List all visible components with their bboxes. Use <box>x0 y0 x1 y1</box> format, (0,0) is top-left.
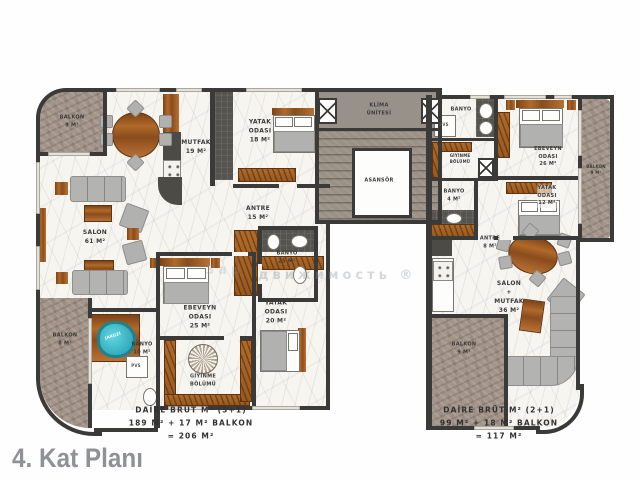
label-shaft-right: PVS <box>439 122 449 128</box>
sofa <box>72 270 128 295</box>
toilet-icon <box>479 121 493 135</box>
sink-icon <box>291 235 308 248</box>
wall <box>432 178 494 181</box>
pillow <box>288 333 298 351</box>
room-label-banyo-orta: BANYO 25 M² <box>276 251 297 266</box>
bed-headboard <box>160 258 210 266</box>
bed-blanket <box>261 331 287 371</box>
room-label-ebeveyn-26: EBEVEYN ODASI 26 M² <box>534 146 562 169</box>
label-shaft-left: PVS <box>131 363 141 369</box>
wall-corner-bottom-left <box>36 346 102 436</box>
window <box>470 95 490 99</box>
stove-icon <box>433 261 453 281</box>
window <box>246 88 302 92</box>
wall <box>314 226 318 302</box>
closet <box>440 142 472 152</box>
bed-headboard <box>272 108 314 115</box>
room-label-yatak-odasi-18: YATAK ODASI 18 M² <box>249 118 272 145</box>
shaft-x-box <box>318 98 337 124</box>
bed-headboard <box>516 100 564 108</box>
room-label-antre-8: ANTRE 8 M² <box>480 236 500 251</box>
room-label-balkon-right-strip: BALKON 9 M² <box>586 164 606 176</box>
room-label-yatak-odasi-20: YATAK ODASI 20 M² <box>265 299 288 326</box>
pillow <box>275 117 293 127</box>
shower-tray-icon <box>267 234 280 250</box>
bed-blanket <box>274 131 315 152</box>
wall <box>156 252 160 312</box>
shaft-column <box>215 92 233 180</box>
wall <box>438 88 442 224</box>
side-table <box>56 272 68 284</box>
clothes-rack-icon <box>188 344 218 374</box>
room-label-salon-mutfak: SALON + MUTFAK 36 M² <box>494 279 523 315</box>
watermark-text: движимость ® <box>258 268 416 283</box>
wall <box>233 184 279 188</box>
nightstand <box>506 100 515 110</box>
closet <box>164 340 176 402</box>
wall <box>315 220 442 224</box>
wall <box>318 128 438 131</box>
room-label-antre-15: ANTRE 15 M² <box>246 204 270 222</box>
bed-blanket <box>520 124 563 147</box>
dining-chair <box>159 133 172 146</box>
window <box>176 88 202 92</box>
closet <box>240 340 252 402</box>
page-title: 4. Kat Planı <box>12 443 143 474</box>
wall <box>576 238 580 390</box>
side-table <box>55 182 68 195</box>
nightstand <box>567 100 576 110</box>
window <box>578 168 582 224</box>
door-opening <box>498 236 513 240</box>
room-label-ebeveyn-25: EBEVEYN ODASI 25 M² <box>184 304 217 331</box>
door-opening <box>232 252 248 256</box>
wall <box>258 226 318 230</box>
bed-blanket <box>164 282 209 304</box>
left-apartment-summary: DAİRE BRÜT M² (3+1) 189 M² + 17 M² BALKO… <box>129 403 253 442</box>
wardrobe <box>238 168 296 182</box>
dining-table <box>112 112 160 158</box>
door-opening <box>224 336 240 340</box>
room-label-banyo-ust-right: BANYO <box>450 106 471 114</box>
wall <box>580 238 614 242</box>
room-label-mutfak: MUTFAK 19 M² <box>181 138 210 156</box>
wall <box>494 176 578 180</box>
watermark-fragment: Зар <box>205 263 244 278</box>
pillow <box>187 268 206 279</box>
wall <box>474 180 478 238</box>
right-apartment-summary: DAİRE BRÜT M² (2+1) 99 M² + 18 M² BALKON… <box>440 403 558 442</box>
room-label-banyo-10: BANYO 10 M² <box>131 342 152 357</box>
dining-chair <box>498 255 513 270</box>
sofa <box>70 176 126 202</box>
window <box>578 110 582 156</box>
room-label-banyo-4: BANYO 4 M² <box>443 189 464 204</box>
room-label-balkon-top-left: BALKON 9 M² <box>60 115 85 130</box>
tv-unit <box>39 208 46 262</box>
wardrobe <box>497 112 510 158</box>
wall <box>88 308 160 312</box>
sofa-l-vertical <box>550 296 578 360</box>
wall <box>326 220 330 410</box>
window <box>504 95 546 99</box>
window <box>36 162 40 214</box>
wall <box>494 95 498 181</box>
side-table <box>127 228 139 240</box>
wall <box>610 97 614 240</box>
pillow <box>542 110 560 121</box>
jacuzzi <box>97 321 136 358</box>
window <box>116 88 160 92</box>
pillow <box>522 110 540 121</box>
room-label-salon-61: SALON 61 M² <box>83 228 107 246</box>
window <box>252 406 300 410</box>
window <box>36 246 40 290</box>
room-label-balkon-bottom-left: BALKON 8 M² <box>53 333 78 348</box>
coffee-table <box>84 205 112 222</box>
wall <box>432 138 494 141</box>
wall <box>103 92 107 154</box>
room-label-balkon-bottom-right: BALKON 9 M² <box>452 342 477 357</box>
dining-chair <box>159 115 172 128</box>
wall <box>297 184 330 188</box>
wall <box>426 95 432 430</box>
wall <box>315 88 319 224</box>
shaft-x-box <box>478 158 494 178</box>
room-label-giyinme-left: GİYİNME BÖLÜMÜ <box>190 374 216 389</box>
pillow <box>294 117 312 127</box>
room-label-yatak-odasi-12: YATAK ODASI 12 M² <box>537 185 556 208</box>
sink-icon <box>446 213 462 224</box>
refrigerator <box>432 240 452 256</box>
pillow <box>521 202 538 212</box>
window <box>48 152 90 156</box>
wall <box>430 236 478 240</box>
floor-plan-canvas: движимость ® Зар <box>0 0 640 480</box>
room-label-asansor: ASANSÖR <box>364 177 393 185</box>
room-label-giyinme-right: GİYİNME BÖLÜMÜ <box>450 153 471 165</box>
room-label-klima: KLİMA ÜNİTESİ <box>367 103 392 118</box>
pillow <box>166 268 185 279</box>
window <box>554 95 572 99</box>
sink-icon <box>479 103 493 119</box>
window <box>88 318 92 384</box>
wall <box>252 252 256 408</box>
